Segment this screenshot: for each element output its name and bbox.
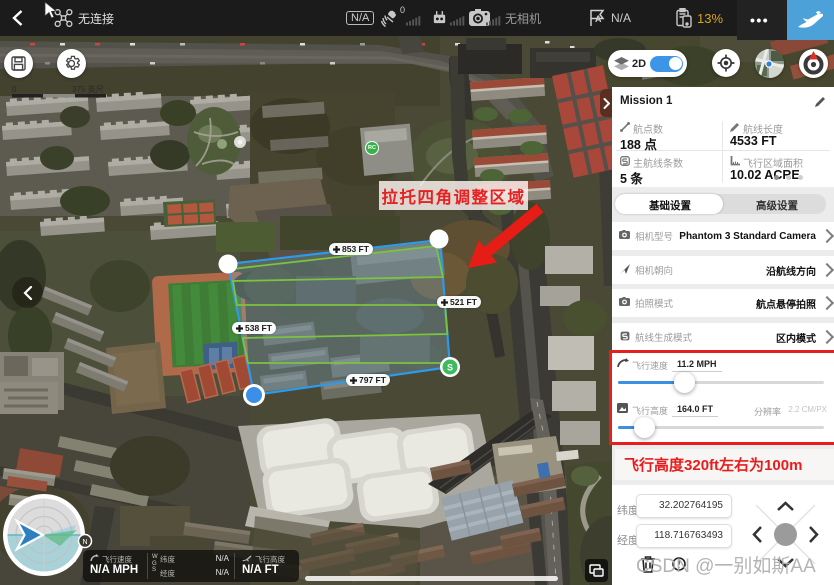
svg-text:S: S: [447, 363, 453, 373]
svg-text:A: A: [595, 14, 602, 24]
svg-text:N: N: [82, 539, 87, 546]
svg-text:0: 0: [12, 85, 17, 94]
svg-text:375 英尺: 375 英尺: [72, 84, 104, 94]
